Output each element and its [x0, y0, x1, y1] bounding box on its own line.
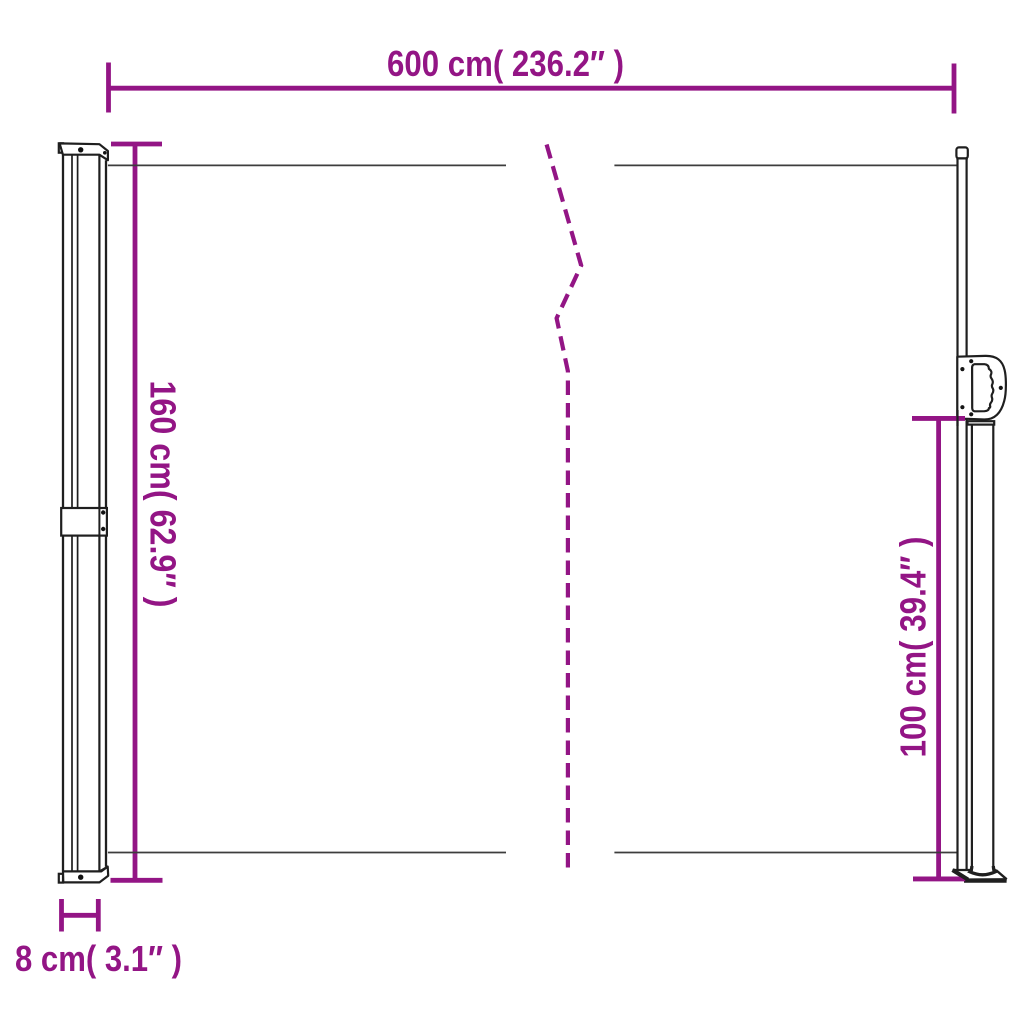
svg-text:160 cm( 62.9″ ): 160 cm( 62.9″ )	[143, 381, 184, 608]
svg-text:8 cm( 3.1″ ): 8 cm( 3.1″ )	[15, 938, 182, 979]
svg-text:600 cm( 236.2″ ): 600 cm( 236.2″ )	[387, 43, 624, 84]
svg-text:100 cm( 39.4″ ): 100 cm( 39.4″ )	[893, 537, 934, 758]
